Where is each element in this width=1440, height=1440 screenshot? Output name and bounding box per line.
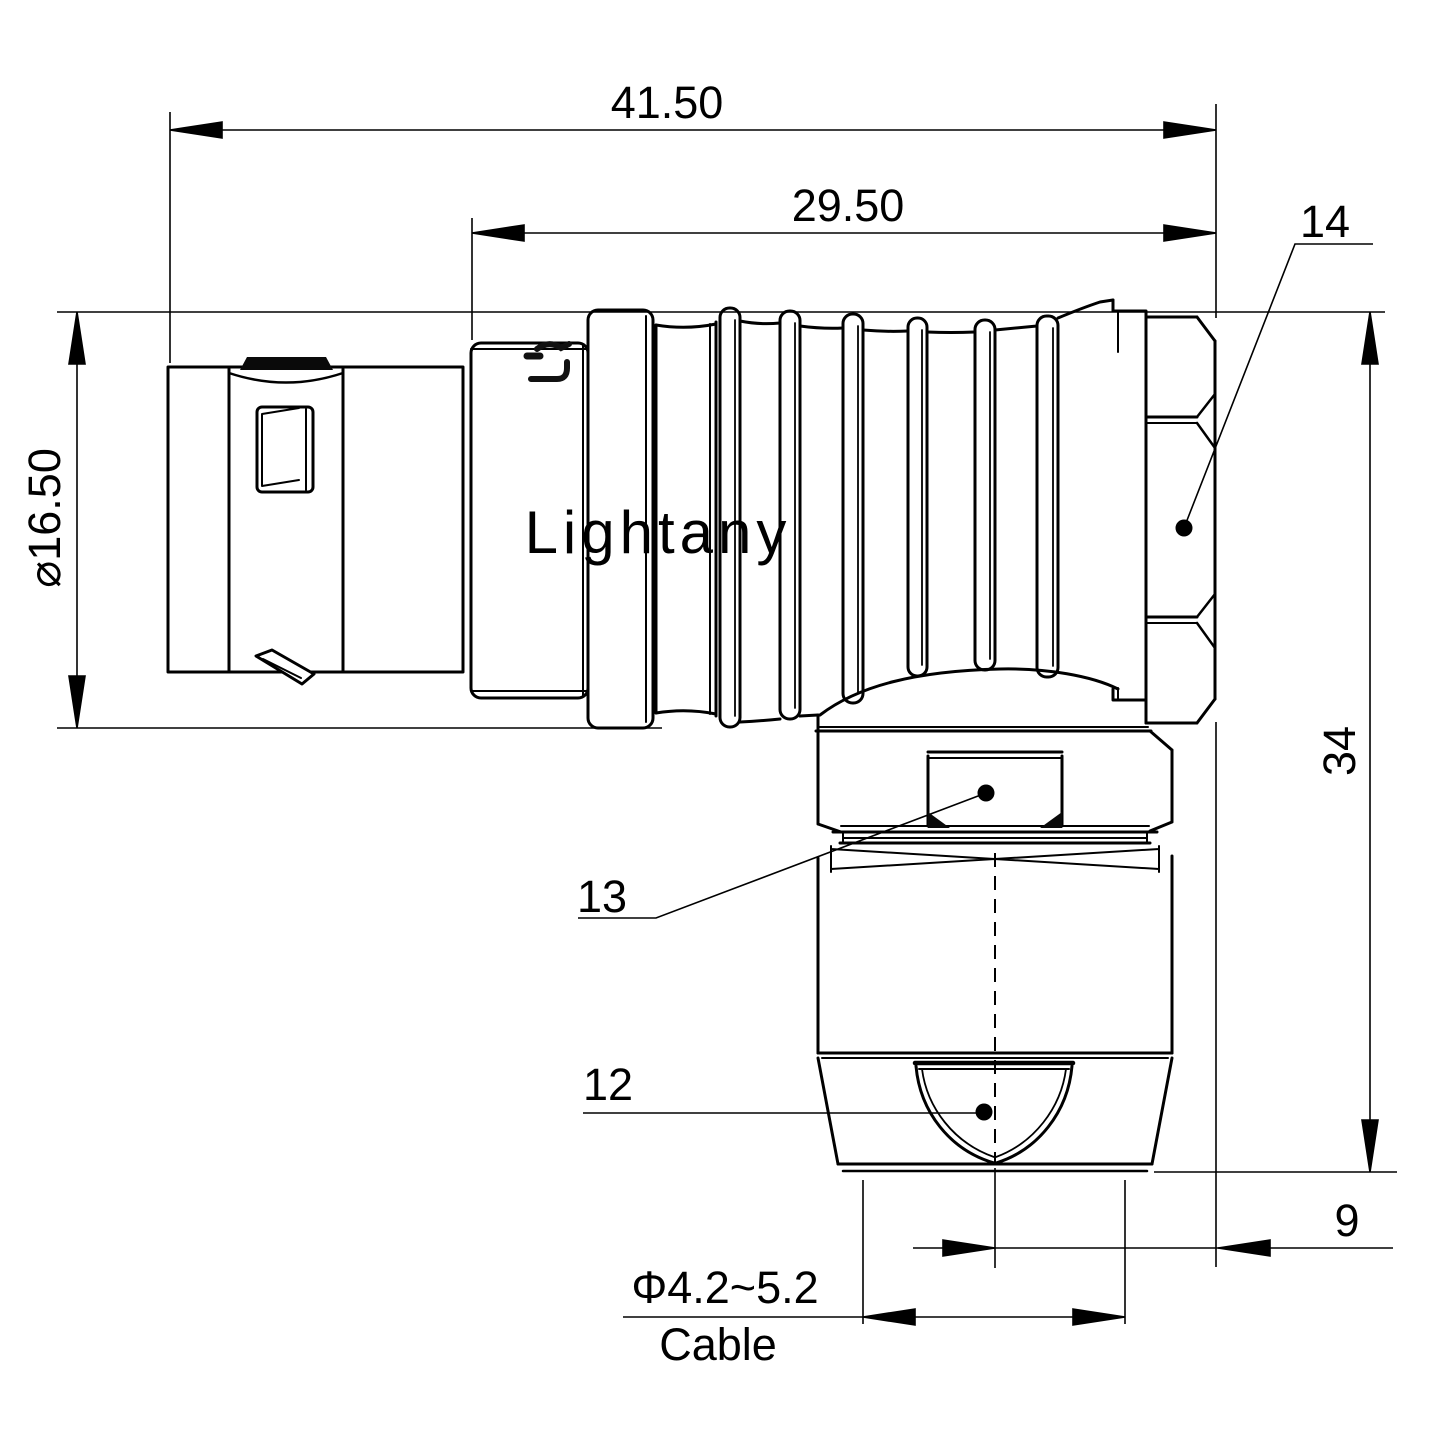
dim-body-length: 29.50 xyxy=(792,180,905,231)
elbow-body xyxy=(816,715,1172,832)
dim-bend-offset: 9 xyxy=(1334,1195,1359,1246)
dim-overall-length: 41.50 xyxy=(611,77,724,128)
dim-height: 34 xyxy=(1314,726,1365,776)
extension-lines xyxy=(57,104,1397,1324)
connector-dimension-drawing: Lightany xyxy=(0,0,1440,1440)
watermark-text: Lightany xyxy=(525,499,792,566)
connector-outline xyxy=(168,300,1215,1171)
dim-front-diameter: ⌀16.50 xyxy=(19,448,70,588)
shell-profile xyxy=(740,300,1118,722)
leader-dots xyxy=(976,520,1193,1121)
part-label-cable-bushing: 12 xyxy=(583,1059,633,1110)
technical-drawing-page: Lightany xyxy=(0,0,1440,1440)
part-label-clamp-nut: 13 xyxy=(577,871,627,922)
dim-cable-diameter: Φ4.2~5.2 xyxy=(631,1262,818,1313)
front-plug-barrel xyxy=(168,357,463,684)
part-label-backnut: 14 xyxy=(1300,196,1350,247)
dim-cable-word: Cable xyxy=(659,1319,777,1370)
hex-backnut xyxy=(1113,300,1215,723)
